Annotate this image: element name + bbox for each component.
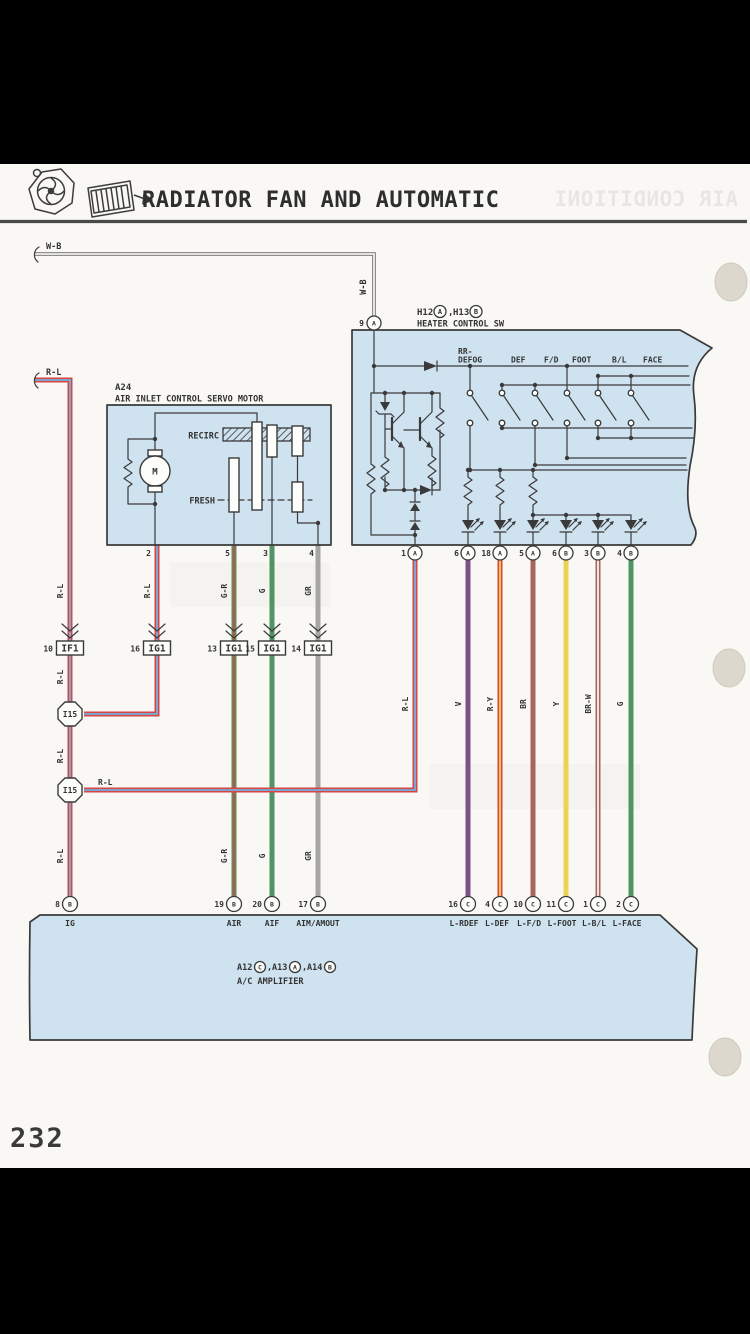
wire-label-wb-vert: W-B: [359, 279, 369, 294]
manual-page: RADIATOR FAN AND AUTOMATIC AIR CONDITION…: [0, 164, 750, 1168]
svg-text:FACE: FACE: [643, 356, 662, 365]
svg-text:A: A: [498, 550, 502, 558]
wire-label-rl-top: R-L: [46, 368, 61, 378]
svg-text:4: 4: [309, 549, 314, 558]
junction-i15-1: I15: [58, 702, 82, 726]
svg-text:C: C: [629, 901, 633, 909]
svg-text:A12: A12: [237, 963, 252, 973]
svg-text:17: 17: [298, 900, 308, 909]
svg-text:A13: A13: [272, 963, 287, 973]
svg-text:A: A: [413, 550, 417, 558]
svg-text:C: C: [531, 901, 535, 909]
page-number: 232: [10, 1123, 65, 1154]
chevron-icons: [62, 624, 326, 638]
ghost-title: AIR CONDITIONI: [554, 187, 738, 211]
svg-text:I15: I15: [63, 786, 78, 795]
svg-text:18: 18: [481, 549, 491, 558]
svg-text:G-R: G-R: [220, 584, 229, 599]
svg-text:4: 4: [485, 900, 490, 909]
svg-text:R-L: R-L: [56, 749, 65, 764]
svg-text:B/L: B/L: [612, 356, 627, 365]
svg-text:16: 16: [448, 900, 458, 909]
wire-r-l-main: [34, 380, 70, 897]
punch-hole: [715, 263, 747, 301]
svg-text:A14: A14: [307, 963, 322, 973]
wiring-diagram: RADIATOR FAN AND AUTOMATIC AIR CONDITION…: [0, 164, 750, 1168]
svg-text:R-L: R-L: [56, 670, 65, 685]
svg-text:C: C: [596, 901, 600, 909]
svg-text:AIM/AMOUT: AIM/AMOUT: [296, 919, 340, 928]
svg-text:IG1: IG1: [148, 644, 165, 655]
svg-text:B: B: [68, 901, 72, 909]
svg-text:DEFOG: DEFOG: [458, 356, 482, 365]
svg-text:FOOT: FOOT: [572, 356, 591, 365]
svg-text:AIF: AIF: [265, 919, 280, 928]
phone-screenshot: RADIATOR FAN AND AUTOMATIC AIR CONDITION…: [0, 0, 750, 1334]
air-inlet-servo-motor: A24 AIR INLET CONTROL SERVO MOTOR: [107, 383, 331, 558]
svg-text:15: 15: [245, 645, 255, 654]
punch-hole: [713, 649, 745, 687]
svg-text:20: 20: [252, 900, 262, 909]
svg-text:IG1: IG1: [225, 644, 242, 655]
svg-text:Y: Y: [552, 701, 561, 706]
inline-connectors: IF1 10 IG1 16 IG1 13 IG1 15 IG1 14: [43, 624, 331, 655]
junction-i15-2: I15: [58, 778, 82, 802]
svg-text:6: 6: [552, 549, 557, 558]
svg-text:3: 3: [584, 549, 589, 558]
svg-text:1: 1: [401, 549, 406, 558]
wire-label-wb: W-B: [46, 242, 61, 252]
join-label: R-L: [98, 778, 113, 787]
svg-text:B: B: [564, 550, 568, 558]
svg-text:C: C: [498, 901, 502, 909]
wire-w-b: [34, 254, 374, 316]
svg-text:16: 16: [130, 645, 140, 654]
svg-text:G: G: [258, 588, 267, 593]
svg-text:M: M: [152, 468, 158, 478]
svg-text:C: C: [466, 901, 470, 909]
fresh-label: FRESH: [189, 497, 215, 507]
svg-text:5: 5: [519, 549, 524, 558]
punch-hole: [709, 1038, 741, 1076]
svg-text:B: B: [316, 901, 320, 909]
svg-text:4: 4: [617, 549, 622, 558]
wire-run-labels: R-L R-L G-R G GR R-L R-L R-L G-R G GR R-…: [56, 584, 625, 864]
svg-text:C: C: [258, 964, 262, 972]
svg-text:F/D: F/D: [544, 356, 559, 365]
heater-control-sw: H12 A , H13 B HEATER CONTROL SW A 9: [352, 306, 712, 561]
svg-text:A: A: [466, 550, 470, 558]
svg-text:DEF: DEF: [511, 356, 526, 365]
svg-text:6: 6: [454, 549, 459, 558]
svg-text:L-RDEF: L-RDEF: [450, 919, 479, 928]
svg-text:L-DEF: L-DEF: [485, 919, 509, 928]
heater-pin-9A: A 9: [359, 316, 381, 330]
svg-text:R-L: R-L: [56, 849, 65, 864]
svg-text:L-FOOT: L-FOOT: [548, 919, 577, 928]
heater-name: HEATER CONTROL SW: [417, 320, 505, 330]
svg-text:G: G: [258, 853, 267, 858]
recirc-label: RECIRC: [188, 432, 219, 442]
svg-text:B: B: [629, 550, 633, 558]
svg-text:A: A: [372, 320, 376, 328]
svg-text:3: 3: [263, 549, 268, 558]
svg-text:IG1: IG1: [263, 644, 280, 655]
heater-id: H12 A , H13 B: [417, 306, 482, 319]
svg-text:R-L: R-L: [56, 584, 65, 599]
servo-name: AIR INLET CONTROL SERVO MOTOR: [115, 395, 264, 405]
wire-r-l-servo: [84, 545, 157, 714]
servo-id: A24: [115, 383, 132, 393]
svg-text:R-L: R-L: [143, 584, 152, 599]
svg-text:C: C: [564, 901, 568, 909]
heater-bottom-pins: A 1 A 6 A 18 A 5 B 6 B 3 B 4: [401, 546, 638, 560]
svg-text:A: A: [531, 550, 535, 558]
svg-text:BR-W: BR-W: [584, 694, 593, 713]
svg-text:B: B: [232, 901, 236, 909]
svg-text:5: 5: [225, 549, 230, 558]
svg-text:13: 13: [207, 645, 217, 654]
servo-pin-numbers: 2 5 3 4: [146, 549, 314, 558]
ac-amplifier: B 8 IG B 19 AIR B 20 AIF B 17 AIM/AMOUT …: [30, 897, 698, 1041]
amplifier-name: A/C AMPLIFIER: [237, 977, 304, 987]
amplifier-id: A12 C , A13 A , A14 B: [237, 962, 336, 974]
svg-text:I15: I15: [63, 710, 78, 719]
svg-text:AIR: AIR: [227, 919, 242, 928]
svg-text:G: G: [616, 701, 625, 706]
amplifier-box-outline: [30, 915, 698, 1040]
svg-text:B: B: [270, 901, 274, 909]
svg-text:L-FACE: L-FACE: [613, 919, 642, 928]
svg-text:H12: H12: [417, 308, 433, 318]
svg-text:R-Y: R-Y: [486, 697, 495, 712]
svg-text:10: 10: [43, 645, 53, 654]
svg-text:G-R: G-R: [220, 849, 229, 864]
svg-text:IF1: IF1: [61, 644, 78, 655]
svg-text:B: B: [328, 964, 332, 972]
svg-text:2: 2: [616, 900, 621, 909]
svg-text:L-F/D: L-F/D: [517, 919, 541, 928]
svg-text:GR: GR: [304, 586, 313, 596]
svg-text:GR: GR: [304, 851, 313, 861]
svg-text:9: 9: [359, 319, 364, 328]
svg-text:B: B: [474, 308, 478, 316]
svg-text:V: V: [454, 701, 463, 706]
header: RADIATOR FAN AND AUTOMATIC AIR CONDITION…: [0, 169, 747, 222]
svg-text:10: 10: [513, 900, 523, 909]
svg-text:14: 14: [291, 645, 301, 654]
connector-boxes: IF1 10 IG1 16 IG1 13 IG1 15 IG1 14: [43, 641, 331, 655]
svg-text:BR: BR: [519, 699, 528, 709]
svg-text:L-B/L: L-B/L: [582, 919, 606, 928]
svg-text:B: B: [596, 550, 600, 558]
svg-text:IG: IG: [65, 919, 75, 928]
fan-icon: [29, 169, 74, 214]
svg-text:8: 8: [55, 900, 60, 909]
page-title: RADIATOR FAN AND AUTOMATIC: [142, 188, 499, 213]
svg-text:11: 11: [546, 900, 556, 909]
svg-text:H13: H13: [453, 308, 469, 318]
svg-text:R-L: R-L: [401, 697, 410, 712]
svg-text:1: 1: [583, 900, 588, 909]
svg-text:19: 19: [214, 900, 224, 909]
scan-smudge: [170, 562, 330, 607]
svg-text:2: 2: [146, 549, 151, 558]
svg-text:A: A: [293, 964, 297, 972]
svg-text:IG1: IG1: [309, 644, 326, 655]
